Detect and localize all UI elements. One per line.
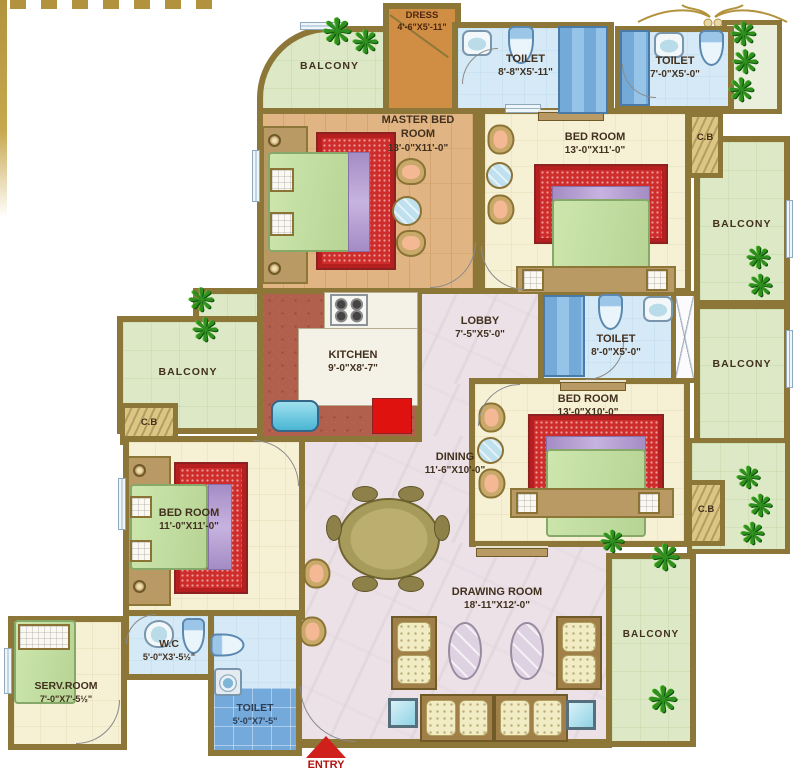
bed-runner-icon [348, 152, 370, 252]
room-label-kitchen: KITCHEN9'-0"X8'-7" [294, 348, 412, 375]
duct-shaft-icon [671, 291, 699, 383]
chair-icon [488, 195, 515, 225]
fridge-icon [372, 398, 412, 434]
room-label-toilet-bottom: TOILET5'-0"X7'-5" [212, 702, 298, 727]
room-label-serv-room: SERV.ROOM7'-0"X7'-5½" [10, 680, 122, 705]
side-table-icon [646, 269, 668, 291]
bed-knob-icon [133, 580, 146, 593]
gold-border-bar [0, 0, 7, 218]
sink-icon [271, 400, 319, 432]
chair-icon [396, 158, 426, 185]
side-table-icon [270, 212, 294, 236]
gold-border-dashes [10, 0, 218, 9]
plant-icon [748, 272, 773, 302]
side-table-icon [516, 492, 538, 514]
side-table-icon [638, 492, 660, 514]
mirror-icon [392, 196, 422, 226]
room-label-cupboard-right: C.B [688, 504, 724, 516]
bed-knob-icon [268, 262, 281, 275]
room-label-bedroom-top-right: BED ROOM13'-0"X11'-0" [522, 130, 668, 157]
room-label-toilet-top-right: TOILET7'-0"X5'-0" [628, 54, 722, 81]
passage-floor [420, 384, 476, 444]
room-label-lobby: LOBBY7'-5"X5'-0" [428, 314, 532, 341]
dining-chair-icon [352, 576, 378, 592]
dining-chair-icon [352, 486, 378, 502]
room-label-master-bedroom: MASTER BED ROOM 13'-0"X11'-0" [358, 113, 478, 155]
console-icon [476, 548, 548, 557]
sofa-cushion [562, 622, 596, 652]
bed-knob-icon [268, 134, 281, 147]
sofa-icon [420, 694, 494, 742]
entry-arrow-icon [306, 736, 346, 758]
side-table-icon [388, 698, 418, 728]
plant-icon [192, 314, 219, 346]
side-table-icon [522, 269, 544, 291]
dining-chair-icon [434, 515, 450, 541]
dining-chair-icon [398, 486, 424, 502]
entry-label: ENTRY [302, 759, 350, 768]
window-icon [252, 150, 260, 202]
sofa-cushion [500, 700, 530, 736]
chair-icon [300, 617, 327, 647]
sofa-cushion [459, 700, 489, 736]
balcony-right-lower [694, 303, 790, 447]
room-label-dining: DINING11'-6"X10'-0" [394, 450, 516, 477]
room-label-balcony-right-upper: BALCONY [700, 218, 784, 232]
pillow-icon [18, 624, 70, 650]
side-table-icon [566, 700, 596, 730]
sofa-cushion [397, 655, 431, 685]
coffee-table-icon [510, 622, 544, 680]
sofa-cushion [426, 700, 456, 736]
plant-icon [322, 14, 352, 50]
room-label-toilet-middle: TOILET8'-0"X5'-0" [560, 332, 672, 359]
dresser-icon [560, 382, 626, 391]
window-icon [786, 330, 793, 388]
chair-icon [304, 559, 331, 589]
dining-table-icon [338, 498, 440, 580]
room-label-bedroom-left: BED ROOM11'-0"X11'-0" [118, 506, 260, 533]
sofa-cushion [397, 622, 431, 652]
sofa-cushion [562, 655, 596, 685]
coffee-table-icon [448, 622, 482, 680]
room-label-drawing-room: DRAWING ROOM18'-11"X12'-0" [388, 585, 606, 612]
room-label-balcony-bottom-right: BALCONY [608, 628, 694, 641]
side-table-icon [270, 168, 294, 192]
room-label-balcony-top-left: BALCONY [282, 60, 377, 74]
room-label-balcony-left: BALCONY [128, 366, 248, 380]
floor-plan: DRESS4'-6"X5'-11" TOILET8'-8"X5'-11" TOI… [0, 0, 793, 768]
sofa-icon [556, 616, 602, 690]
sofa-cushion [533, 700, 563, 736]
plant-icon [352, 26, 379, 58]
sofa-icon [391, 616, 437, 690]
basin-icon [643, 296, 673, 322]
window-icon [505, 104, 541, 113]
side-table-icon [130, 540, 152, 562]
washing-machine-icon [214, 668, 242, 696]
room-label-toilet-top: TOILET8'-8"X5'-11" [468, 52, 583, 79]
plant-icon [740, 520, 765, 550]
dining-chair-icon [326, 515, 342, 541]
plant-icon [648, 682, 678, 718]
bed-knob-icon [133, 464, 146, 477]
room-label-cupboard-left: C.B [121, 417, 177, 429]
room-label-bedroom-right: BED ROOM13'-0"X10'-0" [514, 392, 662, 419]
plant-icon [728, 74, 755, 106]
bed-icon [268, 152, 354, 252]
plant-icon [650, 540, 680, 576]
room-label-dress: DRESS4'-6"X5'-11" [386, 10, 458, 34]
mirror-icon [486, 162, 513, 189]
room-label-balcony-right-lower: BALCONY [700, 358, 784, 372]
room-label-cupboard-top-right: C.B [687, 132, 723, 144]
window-icon [786, 200, 793, 258]
stove-icon [330, 294, 368, 326]
wardrobe-top-right-icon [687, 112, 723, 178]
sofa-icon [494, 694, 568, 742]
plant-icon [600, 528, 625, 558]
chair-icon [488, 125, 515, 155]
room-label-wc: W.C5'-0"X3'-5½" [126, 638, 212, 663]
chair-icon [396, 230, 426, 257]
